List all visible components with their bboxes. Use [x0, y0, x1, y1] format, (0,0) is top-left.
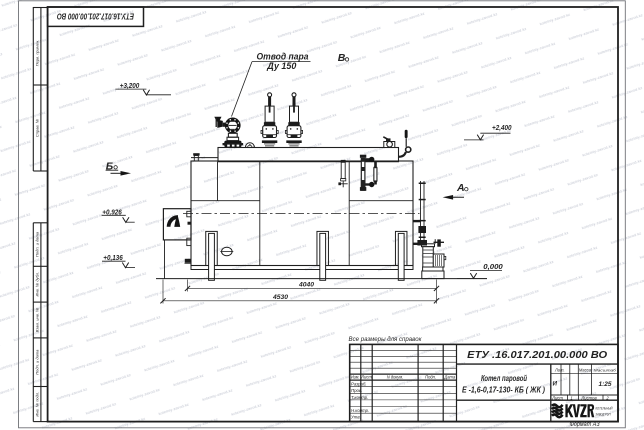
svg-text:1: 1 — [570, 395, 572, 400]
svg-text:Подп. и дата: Подп. и дата — [35, 349, 40, 375]
svg-text:Е -1,6-0,17-130- КБ ( ЖК ): Е -1,6-0,17-130- КБ ( ЖК ) — [462, 386, 545, 395]
svg-text:И: И — [553, 382, 558, 388]
svg-text:Отвод пара: Отвод пара — [257, 52, 309, 62]
svg-text:N докум.: N докум. — [387, 375, 404, 380]
svg-text:Перв. примен.: Перв. примен. — [35, 40, 40, 67]
svg-text:Формат А3: Формат А3 — [570, 421, 600, 428]
svg-text:Лист: Лист — [551, 395, 563, 400]
svg-text:Дата: Дата — [443, 375, 456, 380]
svg-text:+2,400: +2,400 — [492, 125, 512, 132]
svg-text:ЕТУ .16.017.201.00.000 ВО: ЕТУ .16.017.201.00.000 ВО — [467, 350, 607, 361]
svg-text:Разраб.: Разраб. — [351, 382, 367, 387]
svg-text:В: В — [338, 52, 346, 64]
svg-text:Лист: Лист — [360, 375, 372, 380]
svg-text:4040: 4040 — [298, 282, 314, 289]
svg-text:1:25: 1:25 — [598, 381, 611, 388]
svg-text:ЕТУ.16.017.201.00.000 ВО: ЕТУ.16.017.201.00.000 ВО — [57, 12, 134, 21]
svg-text:Подп. и дата: Подп. и дата — [35, 231, 40, 257]
svg-text:Котел паровой: Котел паровой — [481, 373, 528, 383]
svg-text:Н.контр.: Н.контр. — [351, 408, 369, 413]
svg-text:Утв.: Утв. — [351, 415, 361, 420]
svg-text:Изм.: Изм. — [351, 375, 360, 380]
svg-text:Лит.: Лит. — [554, 367, 565, 372]
svg-text:Все размеры для справок: Все размеры для справок — [349, 335, 423, 343]
svg-text:Масса: Масса — [579, 367, 592, 372]
svg-text:Инв. № дубл.: Инв. № дубл. — [35, 272, 40, 297]
svg-text:Ду 150: Ду 150 — [266, 61, 296, 71]
svg-text:Т.контр.: Т.контр. — [351, 395, 368, 400]
svg-text:Справ. №: Справ. № — [35, 118, 40, 137]
svg-text:Подп.: Подп. — [425, 375, 436, 380]
svg-text:Взам. инв. №: Взам. инв. № — [35, 307, 40, 332]
svg-text:Пров.: Пров. — [351, 388, 362, 393]
svg-text:ЗАВОД РЭП: ЗАВОД РЭП — [596, 411, 611, 416]
svg-text:Листов: Листов — [580, 395, 597, 400]
svg-text:КОТЕЛЬНЫЙ: КОТЕЛЬНЫЙ — [596, 406, 613, 411]
svg-text:Инв. № подл.: Инв. № подл. — [35, 392, 40, 417]
svg-text:А: А — [456, 182, 465, 194]
svg-text:Масштаб: Масштаб — [594, 367, 617, 372]
svg-text:4530: 4530 — [272, 294, 288, 301]
